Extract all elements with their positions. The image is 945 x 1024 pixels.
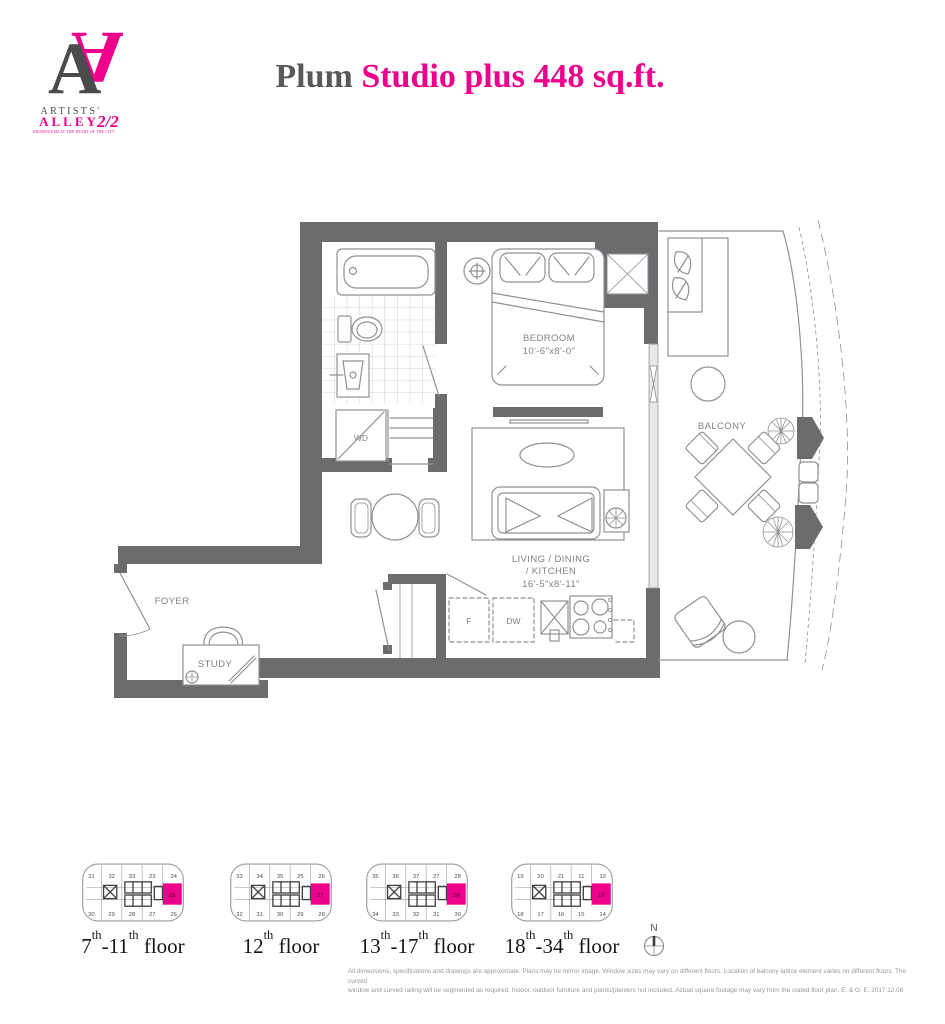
floor-range-label: 18th-34th floor	[497, 934, 627, 959]
svg-text:27: 27	[433, 874, 440, 880]
unit-number: 29	[453, 893, 460, 899]
keyplan-block-1: 25 31 32 33 23 24 30 29 28 27 26 7th-11t…	[68, 860, 198, 959]
svg-text:24: 24	[170, 874, 177, 880]
patio-table-set	[685, 431, 781, 523]
bedroom-dims: 10'-6"x8'-0"	[523, 346, 576, 357]
fridge-label: F	[466, 616, 471, 626]
svg-text:29: 29	[108, 912, 115, 918]
shaft-box	[607, 254, 648, 294]
dishwasher-label: DW	[506, 616, 520, 626]
svg-text:33: 33	[236, 874, 243, 880]
unit-number: 13	[598, 893, 605, 899]
living-dining: LIVING / DINING / KITCHEN 16'-5"x8'-11"	[351, 407, 629, 590]
unit-number: 27	[317, 893, 324, 899]
side-table	[604, 490, 629, 532]
svg-text:31: 31	[433, 912, 440, 918]
svg-text:36: 36	[392, 874, 399, 880]
dining-table-set	[351, 494, 439, 540]
planter-pot	[691, 367, 725, 401]
svg-text:12: 12	[599, 874, 606, 880]
planter	[668, 238, 728, 356]
svg-text:34: 34	[372, 912, 379, 918]
keyplan-18-34: 13 19 20 21 11 12 18 17 16 15 14	[508, 860, 616, 925]
keyplan-block-3: 29 35 36 37 27 28 34 33 32 31 30 13th-17…	[352, 860, 482, 959]
svg-text:29: 29	[297, 912, 304, 918]
tv-console	[493, 407, 603, 417]
entry-door	[120, 573, 150, 629]
svg-text:18: 18	[517, 912, 524, 918]
svg-text:14: 14	[599, 912, 606, 918]
cabinet-door	[447, 574, 486, 595]
svg-text:33: 33	[129, 874, 136, 880]
washer-dryer-label: WD	[354, 433, 368, 443]
svg-text:37: 37	[413, 874, 420, 880]
svg-text:17: 17	[537, 912, 544, 918]
living-label-1: LIVING / DINING	[512, 554, 590, 565]
bedroom-label: BEDROOM	[523, 333, 575, 344]
svg-text:21: 21	[558, 874, 565, 880]
balcony: BALCONY	[659, 220, 848, 670]
unit-number: 25	[169, 893, 176, 899]
svg-text:30: 30	[88, 912, 95, 918]
keyplan-13-17: 29 35 36 37 27 28 34 33 32 31 30	[363, 860, 471, 925]
foyer: FOYER	[120, 573, 189, 636]
patio-side-table	[723, 621, 755, 653]
floorplan-sheet: A A ARTISTS' ALLEY 2/2 CONDOMINIUMS AT T…	[0, 0, 945, 1024]
keyplan-block-2: 27 33 34 35 25 26 32 31 30 29 28 12th fl…	[216, 860, 346, 959]
svg-text:26: 26	[318, 874, 325, 880]
living-dims: 16'-5"x8'-11"	[522, 579, 580, 590]
svg-text:28: 28	[129, 912, 136, 918]
study-nook: STUDY	[183, 627, 259, 685]
svg-text:11: 11	[578, 874, 584, 880]
svg-text:35: 35	[372, 874, 379, 880]
kitchen: F DW	[376, 574, 634, 658]
svg-text:32: 32	[108, 874, 115, 880]
lounge-chair	[673, 595, 728, 650]
floor-range-label: 12th floor	[216, 934, 346, 959]
floor-range-label: 13th-17th floor	[352, 934, 482, 959]
bed	[492, 249, 604, 385]
foyer-label: FOYER	[155, 596, 190, 607]
svg-text:30: 30	[454, 912, 461, 918]
svg-text:30: 30	[277, 912, 284, 918]
svg-text:32: 32	[236, 912, 243, 918]
laundry-closet: WD	[336, 410, 433, 464]
living-label-2: / KITCHEN	[526, 566, 577, 577]
svg-text:31: 31	[256, 912, 263, 918]
svg-text:15: 15	[578, 912, 585, 918]
balcony-label: BALCONY	[698, 421, 746, 432]
study-label: STUDY	[198, 659, 232, 670]
svg-text:19: 19	[517, 874, 524, 880]
disclaimer: All dimensions, specifications and drawi…	[348, 967, 924, 996]
compass-north-label: N	[650, 923, 657, 934]
keyplan-block-4: 13 19 20 21 11 12 18 17 16 15 14 18th-34…	[497, 860, 627, 959]
svg-text:20: 20	[537, 874, 544, 880]
sink	[541, 601, 568, 641]
keyplan-7-11: 25 31 32 33 23 24 30 29 28 27 26	[79, 860, 187, 925]
stove	[570, 596, 612, 638]
svg-text:28: 28	[454, 874, 461, 880]
floor-range-label: 7th-11th floor	[68, 934, 198, 959]
svg-text:33: 33	[392, 912, 399, 918]
svg-text:34: 34	[256, 874, 263, 880]
bathroom	[322, 249, 439, 403]
lattice-element	[797, 417, 824, 459]
svg-text:32: 32	[413, 912, 420, 918]
disclaimer-line-2: window and curved railing will be segmen…	[348, 986, 924, 996]
svg-text:27: 27	[149, 912, 156, 918]
disclaimer-line-1: All dimensions, specifications and drawi…	[348, 967, 924, 986]
svg-text:25: 25	[297, 874, 304, 880]
svg-text:31: 31	[88, 874, 95, 880]
svg-text:28: 28	[318, 912, 325, 918]
bathtub	[337, 249, 435, 295]
sofa	[492, 487, 600, 539]
svg-text:16: 16	[558, 912, 565, 918]
toilet	[338, 316, 382, 342]
bedroom: BEDROOM 10'-6"x8'-0"	[464, 249, 604, 385]
coffee-table	[520, 443, 574, 467]
ceiling-light-icon	[464, 258, 490, 284]
closet-door	[376, 590, 389, 650]
window-wall	[649, 344, 658, 588]
svg-text:26: 26	[170, 912, 177, 918]
keyplan-12: 27 33 34 35 25 26 32 31 30 29 28	[227, 860, 335, 925]
compass-icon: N	[644, 923, 664, 956]
svg-text:35: 35	[277, 874, 284, 880]
svg-text:23: 23	[149, 874, 156, 880]
lattice-element	[795, 505, 823, 549]
